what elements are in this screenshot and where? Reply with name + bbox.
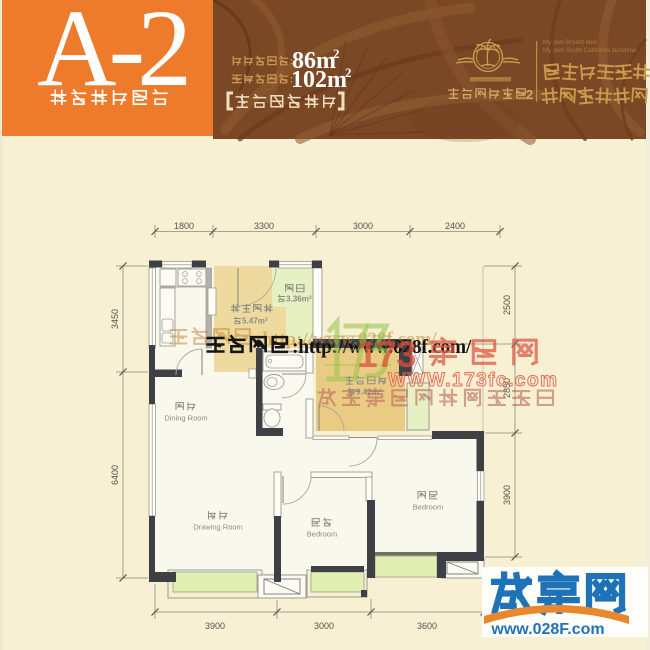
svg-text:3600: 3600 bbox=[417, 621, 437, 631]
svg-text:2: 2 bbox=[526, 87, 533, 102]
svg-text:My own Bryant lake,: My own Bryant lake, bbox=[543, 39, 599, 46]
svg-text:2: 2 bbox=[345, 65, 352, 80]
svg-text:3900: 3900 bbox=[205, 621, 225, 631]
svg-text:3000: 3000 bbox=[353, 221, 373, 231]
svg-text:2: 2 bbox=[333, 46, 340, 61]
svg-text:1800: 1800 bbox=[174, 221, 194, 231]
svg-text:2400: 2400 bbox=[445, 221, 465, 231]
svg-text:6400: 6400 bbox=[110, 465, 120, 485]
svg-text:Dining Room: Dining Room bbox=[164, 414, 207, 423]
svg-text:3.36m²: 3.36m² bbox=[286, 294, 312, 303]
svg-text:3450: 3450 bbox=[110, 309, 120, 329]
svg-text:102m: 102m bbox=[291, 67, 347, 93]
svg-text:Bedroom: Bedroom bbox=[413, 503, 443, 512]
svg-text:My own South California sunshi: My own South California sunshine bbox=[543, 47, 637, 54]
svg-text:3900: 3900 bbox=[502, 485, 512, 505]
svg-text:173: 173 bbox=[357, 334, 416, 375]
svg-text:Drawing Room: Drawing Room bbox=[193, 523, 243, 532]
svg-text:WWW.173fc.com: WWW.173fc.com bbox=[388, 370, 558, 391]
svg-text:3300: 3300 bbox=[254, 221, 274, 231]
svg-text:www.028F.com: www.028F.com bbox=[490, 621, 604, 638]
svg-text:Bedroom: Bedroom bbox=[307, 530, 337, 539]
svg-text:5.47m²: 5.47m² bbox=[242, 316, 268, 325]
svg-text:2500: 2500 bbox=[502, 295, 512, 315]
svg-text:3000: 3000 bbox=[314, 621, 334, 631]
